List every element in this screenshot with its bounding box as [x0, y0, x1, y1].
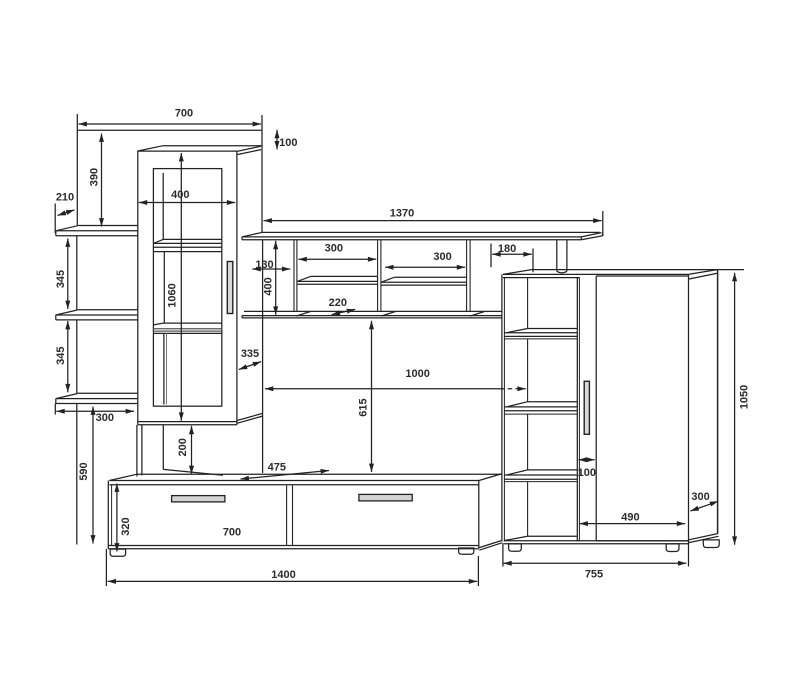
svg-text:700: 700: [175, 108, 193, 120]
svg-text:490: 490: [621, 512, 639, 524]
svg-text:345: 345: [55, 347, 67, 365]
svg-text:320: 320: [120, 517, 132, 535]
svg-text:390: 390: [88, 168, 100, 186]
svg-text:345: 345: [55, 270, 67, 288]
svg-text:400: 400: [171, 189, 189, 201]
svg-text:220: 220: [329, 297, 347, 309]
svg-text:700: 700: [223, 526, 241, 538]
svg-text:1060: 1060: [166, 283, 178, 307]
svg-text:300: 300: [96, 412, 114, 424]
svg-text:300: 300: [433, 251, 451, 263]
svg-text:100: 100: [279, 137, 297, 149]
svg-text:335: 335: [241, 348, 259, 360]
svg-text:615: 615: [358, 398, 370, 416]
svg-text:130: 130: [255, 259, 273, 271]
svg-text:1000: 1000: [405, 368, 429, 380]
svg-text:755: 755: [585, 568, 603, 580]
svg-text:200: 200: [177, 438, 189, 456]
svg-text:300: 300: [325, 243, 343, 255]
svg-text:475: 475: [268, 462, 286, 474]
svg-text:590: 590: [78, 462, 90, 480]
svg-text:400: 400: [262, 277, 274, 295]
svg-text:1400: 1400: [271, 569, 295, 581]
svg-text:1050: 1050: [738, 385, 750, 409]
svg-text:1370: 1370: [390, 207, 414, 219]
svg-text:300: 300: [691, 491, 709, 503]
svg-text:180: 180: [498, 243, 516, 255]
svg-text:100: 100: [578, 467, 596, 479]
svg-text:210: 210: [56, 192, 74, 204]
